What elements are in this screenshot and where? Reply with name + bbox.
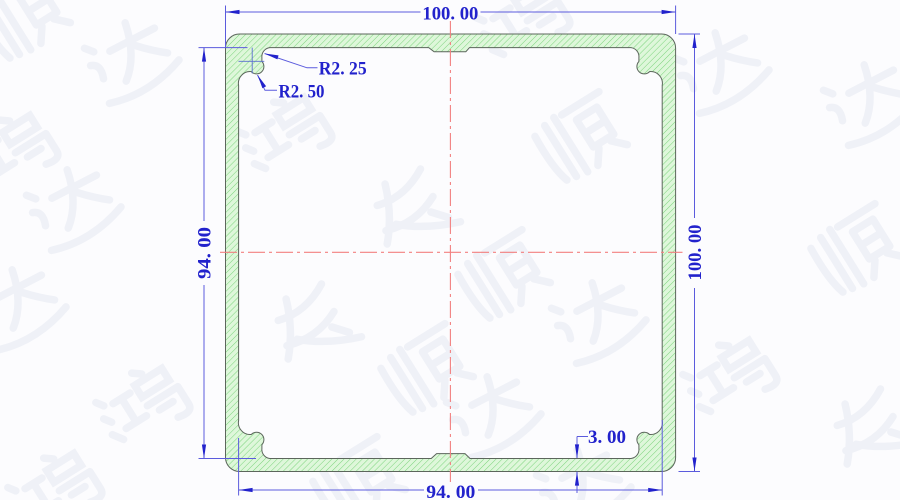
- svg-text:94. 00: 94. 00: [426, 483, 475, 500]
- svg-text:100. 00: 100. 00: [422, 4, 478, 24]
- svg-text:R2. 50: R2. 50: [279, 83, 325, 103]
- svg-text:R2. 25: R2. 25: [319, 60, 367, 80]
- svg-text:100. 00: 100. 00: [686, 225, 706, 281]
- svg-text:94. 00: 94. 00: [196, 227, 216, 279]
- svg-text:3. 00: 3. 00: [588, 428, 626, 448]
